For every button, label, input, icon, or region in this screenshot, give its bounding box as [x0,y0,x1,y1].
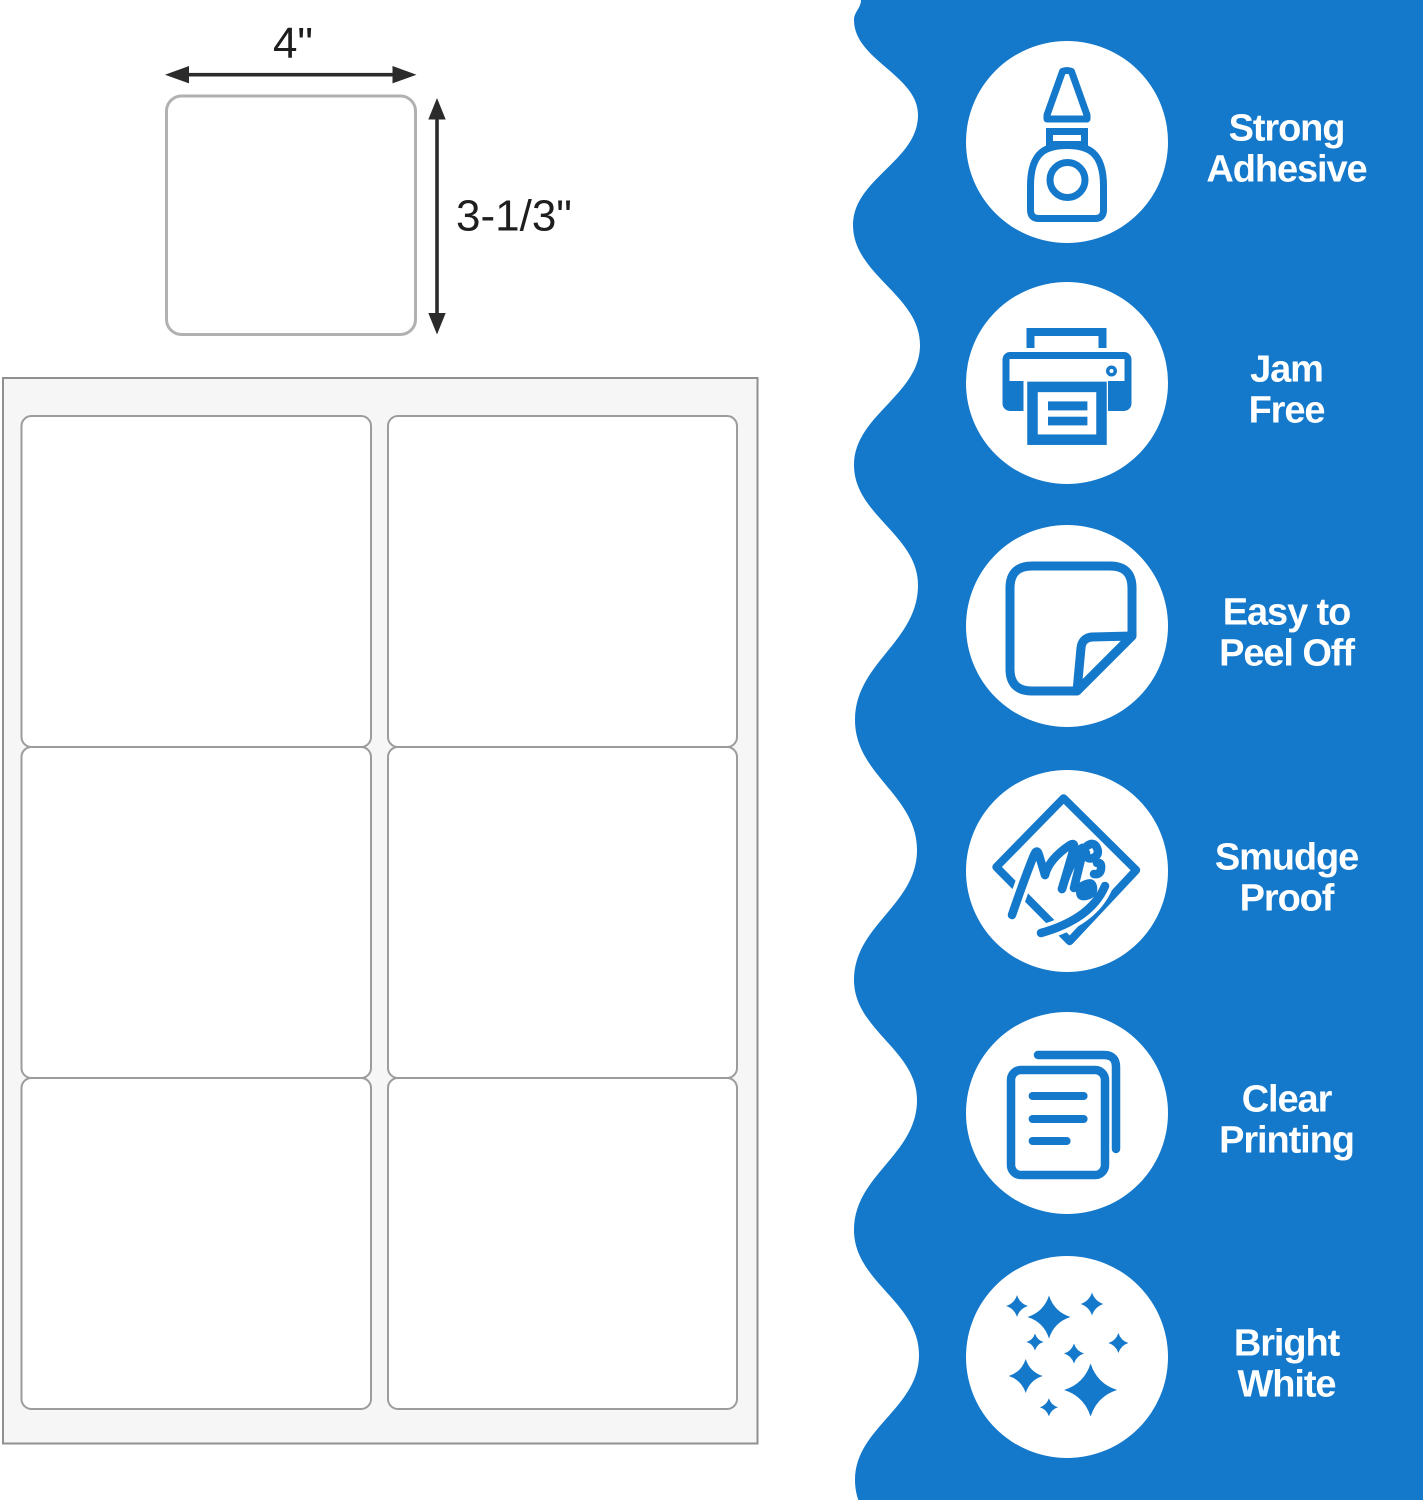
svg-text:4": 4" [273,19,313,68]
svg-text:Jam: Jam [1250,349,1323,391]
svg-text:Bright: Bright [1234,1323,1341,1365]
svg-text:Free: Free [1249,390,1325,432]
svg-text:Easy to: Easy to [1223,592,1350,634]
svg-text:3-1/3": 3-1/3" [456,192,572,241]
svg-text:Proof: Proof [1240,878,1335,920]
svg-text:White: White [1238,1364,1336,1406]
svg-text:Clear: Clear [1242,1079,1333,1121]
svg-text:Smudge: Smudge [1215,837,1358,879]
svg-text:Strong: Strong [1229,108,1345,150]
svg-text:Adhesive: Adhesive [1206,149,1366,191]
svg-text:Peel Off: Peel Off [1219,633,1355,675]
svg-text:Printing: Printing [1219,1120,1354,1162]
